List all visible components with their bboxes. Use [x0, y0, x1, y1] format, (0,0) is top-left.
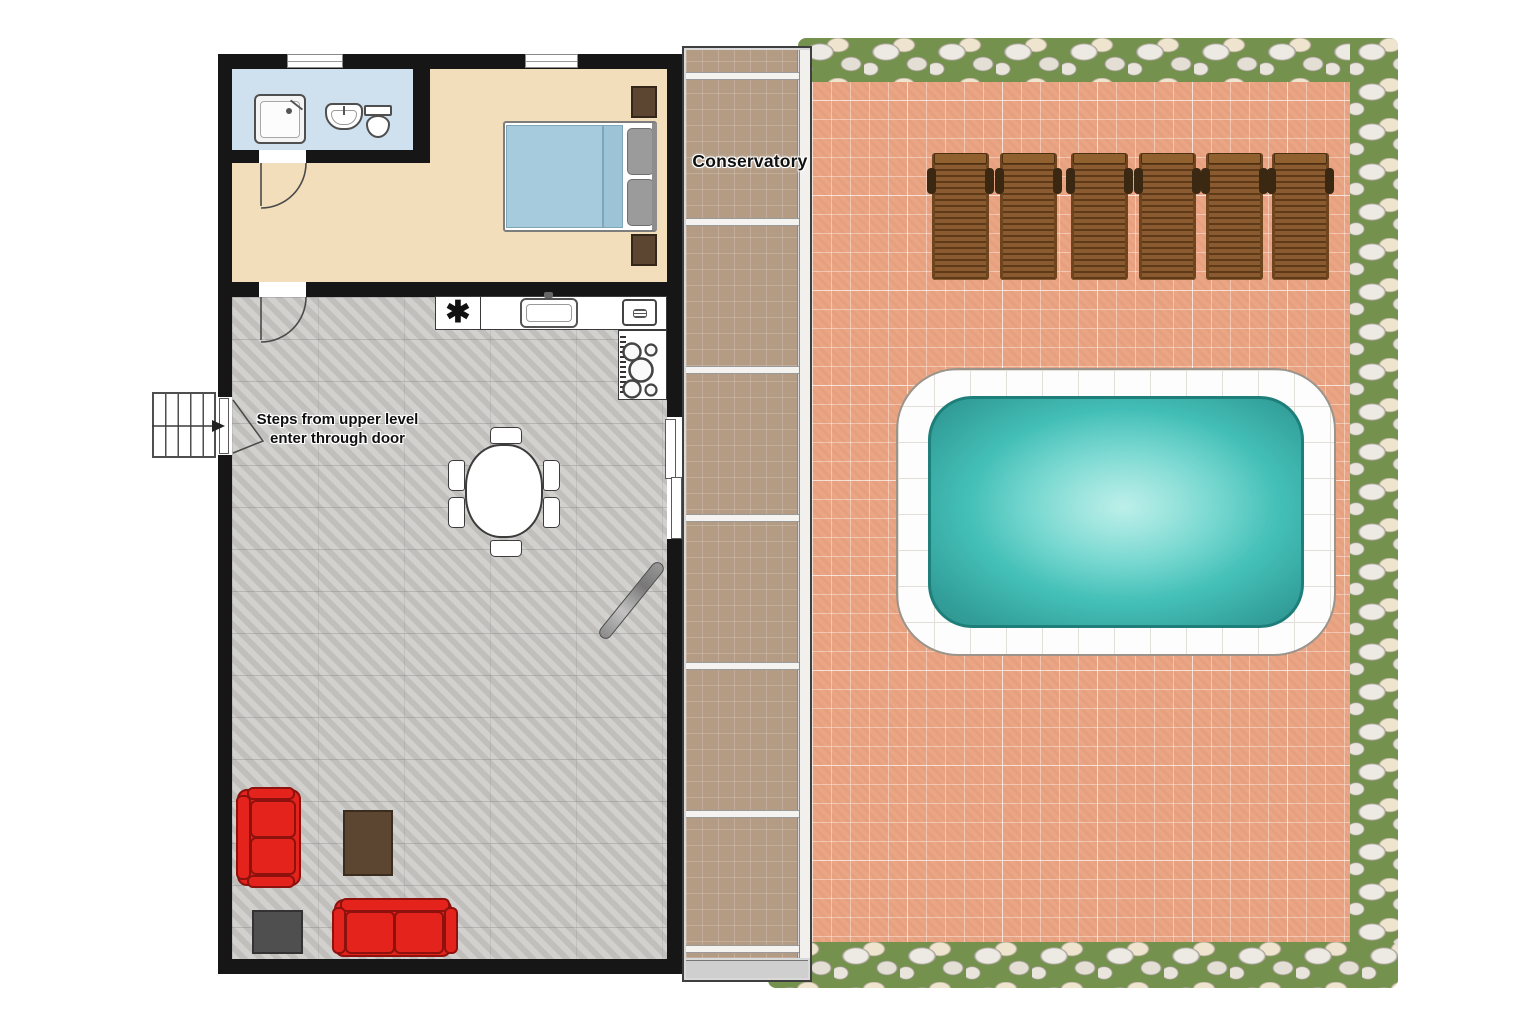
- conservatory-mullion: [686, 514, 799, 522]
- wall-bathroom-right: [413, 68, 430, 163]
- window: [287, 54, 343, 68]
- asterisk-icon: ✱: [445, 296, 470, 329]
- kitchen-sink-bowl: [526, 304, 572, 322]
- sliding-door-panel: [671, 477, 682, 539]
- steps-note-line2: enter through door: [235, 430, 440, 449]
- kitchen-sink: [520, 298, 578, 328]
- conservatory-label: Conservatory: [676, 151, 824, 172]
- nightstand: [631, 86, 657, 118]
- dining-chair: [448, 460, 465, 491]
- conservatory-mullion: [686, 945, 799, 953]
- sun-lounger: [1000, 153, 1057, 280]
- double-bed: [503, 121, 657, 232]
- conservatory-mullion: [686, 662, 799, 670]
- sofa: [334, 899, 452, 957]
- bed-duvet-fold: [603, 125, 623, 228]
- conservatory: [682, 46, 812, 982]
- sun-lounger: [1071, 153, 1128, 280]
- dining-chair: [490, 540, 522, 557]
- conservatory-mullion: [686, 218, 799, 226]
- stone-border-bottom: [768, 942, 1398, 988]
- bed-duvet: [506, 125, 603, 228]
- shower: [254, 94, 306, 144]
- stone-border-right: [1350, 38, 1398, 988]
- sun-lounger: [1206, 153, 1263, 280]
- bathroom-door-opening: [259, 150, 306, 163]
- coffee-table: [343, 810, 393, 876]
- pillow: [627, 128, 654, 175]
- nightstand: [631, 234, 657, 266]
- wall-left: [218, 54, 232, 974]
- pillow: [627, 179, 654, 226]
- side-table: [252, 910, 303, 954]
- conservatory-mullion: [686, 810, 799, 818]
- wall-bottom: [218, 959, 682, 974]
- stone-border-top: [798, 38, 1398, 82]
- dining-chair: [543, 460, 560, 491]
- conservatory-mullion: [686, 72, 799, 80]
- bed-headboard: [652, 123, 657, 230]
- shower-tray: [260, 101, 300, 138]
- floor-plan-canvas: ✱: [0, 0, 1540, 1030]
- kitchen-appliance-symbol: ✱: [435, 296, 481, 330]
- sun-lounger: [1272, 153, 1329, 280]
- dining-chair: [448, 497, 465, 528]
- conservatory-bottom-frame: [686, 960, 808, 978]
- conservatory-right-frame: [799, 50, 810, 958]
- dining-chair: [490, 427, 522, 444]
- window: [525, 54, 578, 68]
- shower-head-icon: [286, 108, 292, 114]
- entry-door-leaf: [219, 398, 229, 454]
- dishwasher-icon: [633, 309, 647, 318]
- sun-lounger: [932, 153, 989, 280]
- sliding-door-panel: [665, 419, 676, 479]
- conservatory-mullion: [686, 366, 799, 374]
- external-steps: [152, 392, 216, 458]
- washbasin-tap: [343, 106, 345, 115]
- conservatory-label-text: Conservatory: [692, 151, 807, 171]
- swimming-pool: [928, 396, 1304, 628]
- sofa: [237, 789, 301, 886]
- steps-note: Steps from upper level enter through doo…: [235, 411, 440, 448]
- dining-chair: [543, 497, 560, 528]
- dishwasher: [622, 299, 657, 326]
- bedroom-door-opening: [259, 282, 306, 297]
- dining-table: [465, 444, 543, 538]
- conservatory-floor: [686, 50, 798, 958]
- steps-note-line1: Steps from upper level: [235, 411, 440, 430]
- pool-deck: [896, 368, 1336, 656]
- stove-grill: [620, 336, 626, 394]
- sun-lounger: [1139, 153, 1196, 280]
